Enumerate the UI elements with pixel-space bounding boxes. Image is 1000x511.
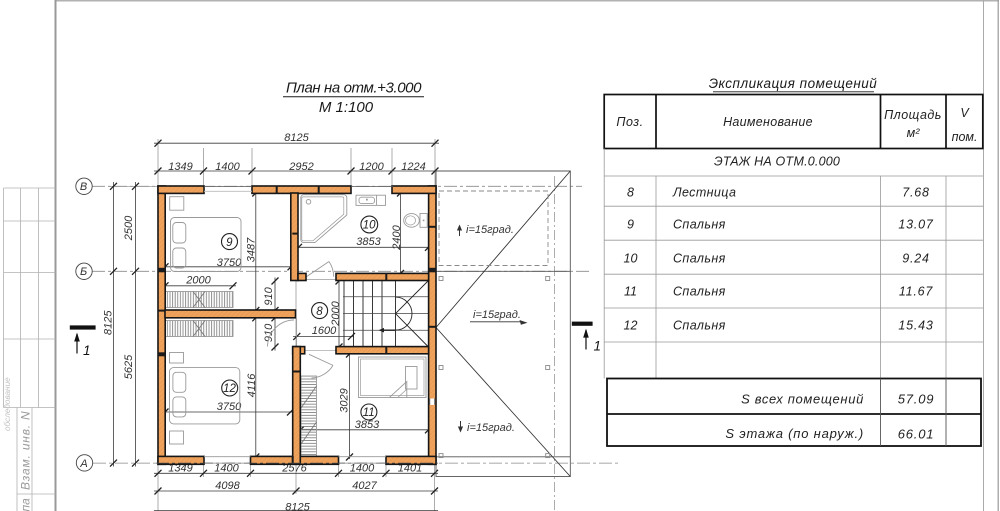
svg-text:4116: 4116 xyxy=(246,373,258,398)
svg-text:1400: 1400 xyxy=(215,161,240,173)
svg-text:Спальня: Спальня xyxy=(673,218,726,232)
svg-text:1600: 1600 xyxy=(312,325,337,337)
svg-text:2500: 2500 xyxy=(123,215,135,241)
svg-text:3029: 3029 xyxy=(338,388,350,412)
svg-text:Спальня: Спальня xyxy=(673,252,726,266)
svg-text:9.24: 9.24 xyxy=(902,252,930,266)
svg-text:Лестница: Лестница xyxy=(672,186,736,200)
svg-text:пом.: пом. xyxy=(952,130,978,144)
svg-text:Спальня: Спальня xyxy=(673,285,726,299)
svg-text:1400: 1400 xyxy=(350,463,375,475)
svg-text:2000: 2000 xyxy=(185,275,211,287)
svg-text:9: 9 xyxy=(226,237,233,249)
svg-text:Наименование: Наименование xyxy=(723,115,813,129)
svg-text:66.01: 66.01 xyxy=(898,427,935,442)
svg-text:В: В xyxy=(80,181,87,193)
svg-text:8125: 8125 xyxy=(285,502,310,511)
svg-text:V: V xyxy=(960,106,970,120)
svg-text:10: 10 xyxy=(624,252,638,266)
svg-text:7.68: 7.68 xyxy=(902,186,930,200)
svg-text:3853: 3853 xyxy=(355,419,380,431)
svg-text:Поз.: Поз. xyxy=(616,115,643,129)
svg-text:1200: 1200 xyxy=(359,161,384,173)
svg-text:15.43: 15.43 xyxy=(898,319,933,333)
svg-text:10: 10 xyxy=(363,220,376,232)
svg-text:57.09: 57.09 xyxy=(898,392,935,407)
svg-text:Б: Б xyxy=(80,266,87,278)
svg-text:1400: 1400 xyxy=(214,463,239,475)
svg-text:А: А xyxy=(79,458,87,470)
svg-text:2400: 2400 xyxy=(391,224,403,250)
svg-text:i=15град.: i=15град. xyxy=(473,309,521,321)
svg-text:5625: 5625 xyxy=(123,354,135,379)
svg-text:3750: 3750 xyxy=(217,401,242,413)
svg-text:i=15град.: i=15град. xyxy=(467,422,515,434)
svg-text:12: 12 xyxy=(223,383,236,395)
svg-text:ЭТАЖ НА ОТМ.0.000: ЭТАЖ НА ОТМ.0.000 xyxy=(714,155,840,169)
svg-text:Площадь: Площадь xyxy=(884,108,942,122)
svg-text:4098: 4098 xyxy=(215,480,240,492)
svg-text:м²: м² xyxy=(907,126,921,140)
svg-text:8: 8 xyxy=(627,186,634,200)
svg-text:8125: 8125 xyxy=(284,132,309,144)
svg-text:1: 1 xyxy=(594,339,602,354)
svg-text:9: 9 xyxy=(627,218,634,232)
svg-text:8: 8 xyxy=(316,306,323,318)
svg-text:13.07: 13.07 xyxy=(898,218,934,232)
svg-text:3487: 3487 xyxy=(246,237,258,262)
svg-text:1349: 1349 xyxy=(168,161,192,173)
svg-text:11: 11 xyxy=(624,285,637,299)
svg-text:i=15град.: i=15град. xyxy=(466,224,514,236)
svg-text:1: 1 xyxy=(83,343,91,358)
svg-text:1224: 1224 xyxy=(401,161,425,173)
svg-text:обследование: обследование xyxy=(3,377,12,431)
svg-text:8125: 8125 xyxy=(103,310,115,335)
svg-text:Экспликация помещений: Экспликация помещений xyxy=(709,76,878,91)
svg-text:4027: 4027 xyxy=(352,480,377,492)
svg-text:М 1:100: М 1:100 xyxy=(319,99,374,116)
svg-text:S этажа (по наруж.): S этажа (по наруж.) xyxy=(725,426,864,441)
svg-text:3750: 3750 xyxy=(217,257,242,269)
svg-text:Спальня: Спальня xyxy=(673,319,726,333)
svg-text:S всех помещений: S всех помещений xyxy=(741,392,864,407)
svg-text:2000: 2000 xyxy=(330,300,342,326)
svg-text:11.67: 11.67 xyxy=(899,285,934,299)
svg-text:План на отм.+3.000: План на отм.+3.000 xyxy=(286,80,422,97)
svg-text:3853: 3853 xyxy=(356,236,381,248)
svg-text:11: 11 xyxy=(363,407,375,419)
svg-text:Взам. инв. N: Взам. инв. N xyxy=(19,411,33,491)
svg-text:910: 910 xyxy=(263,286,275,305)
svg-text:па: па xyxy=(19,498,33,511)
svg-text:12: 12 xyxy=(624,319,638,333)
svg-text:2952: 2952 xyxy=(288,161,313,173)
